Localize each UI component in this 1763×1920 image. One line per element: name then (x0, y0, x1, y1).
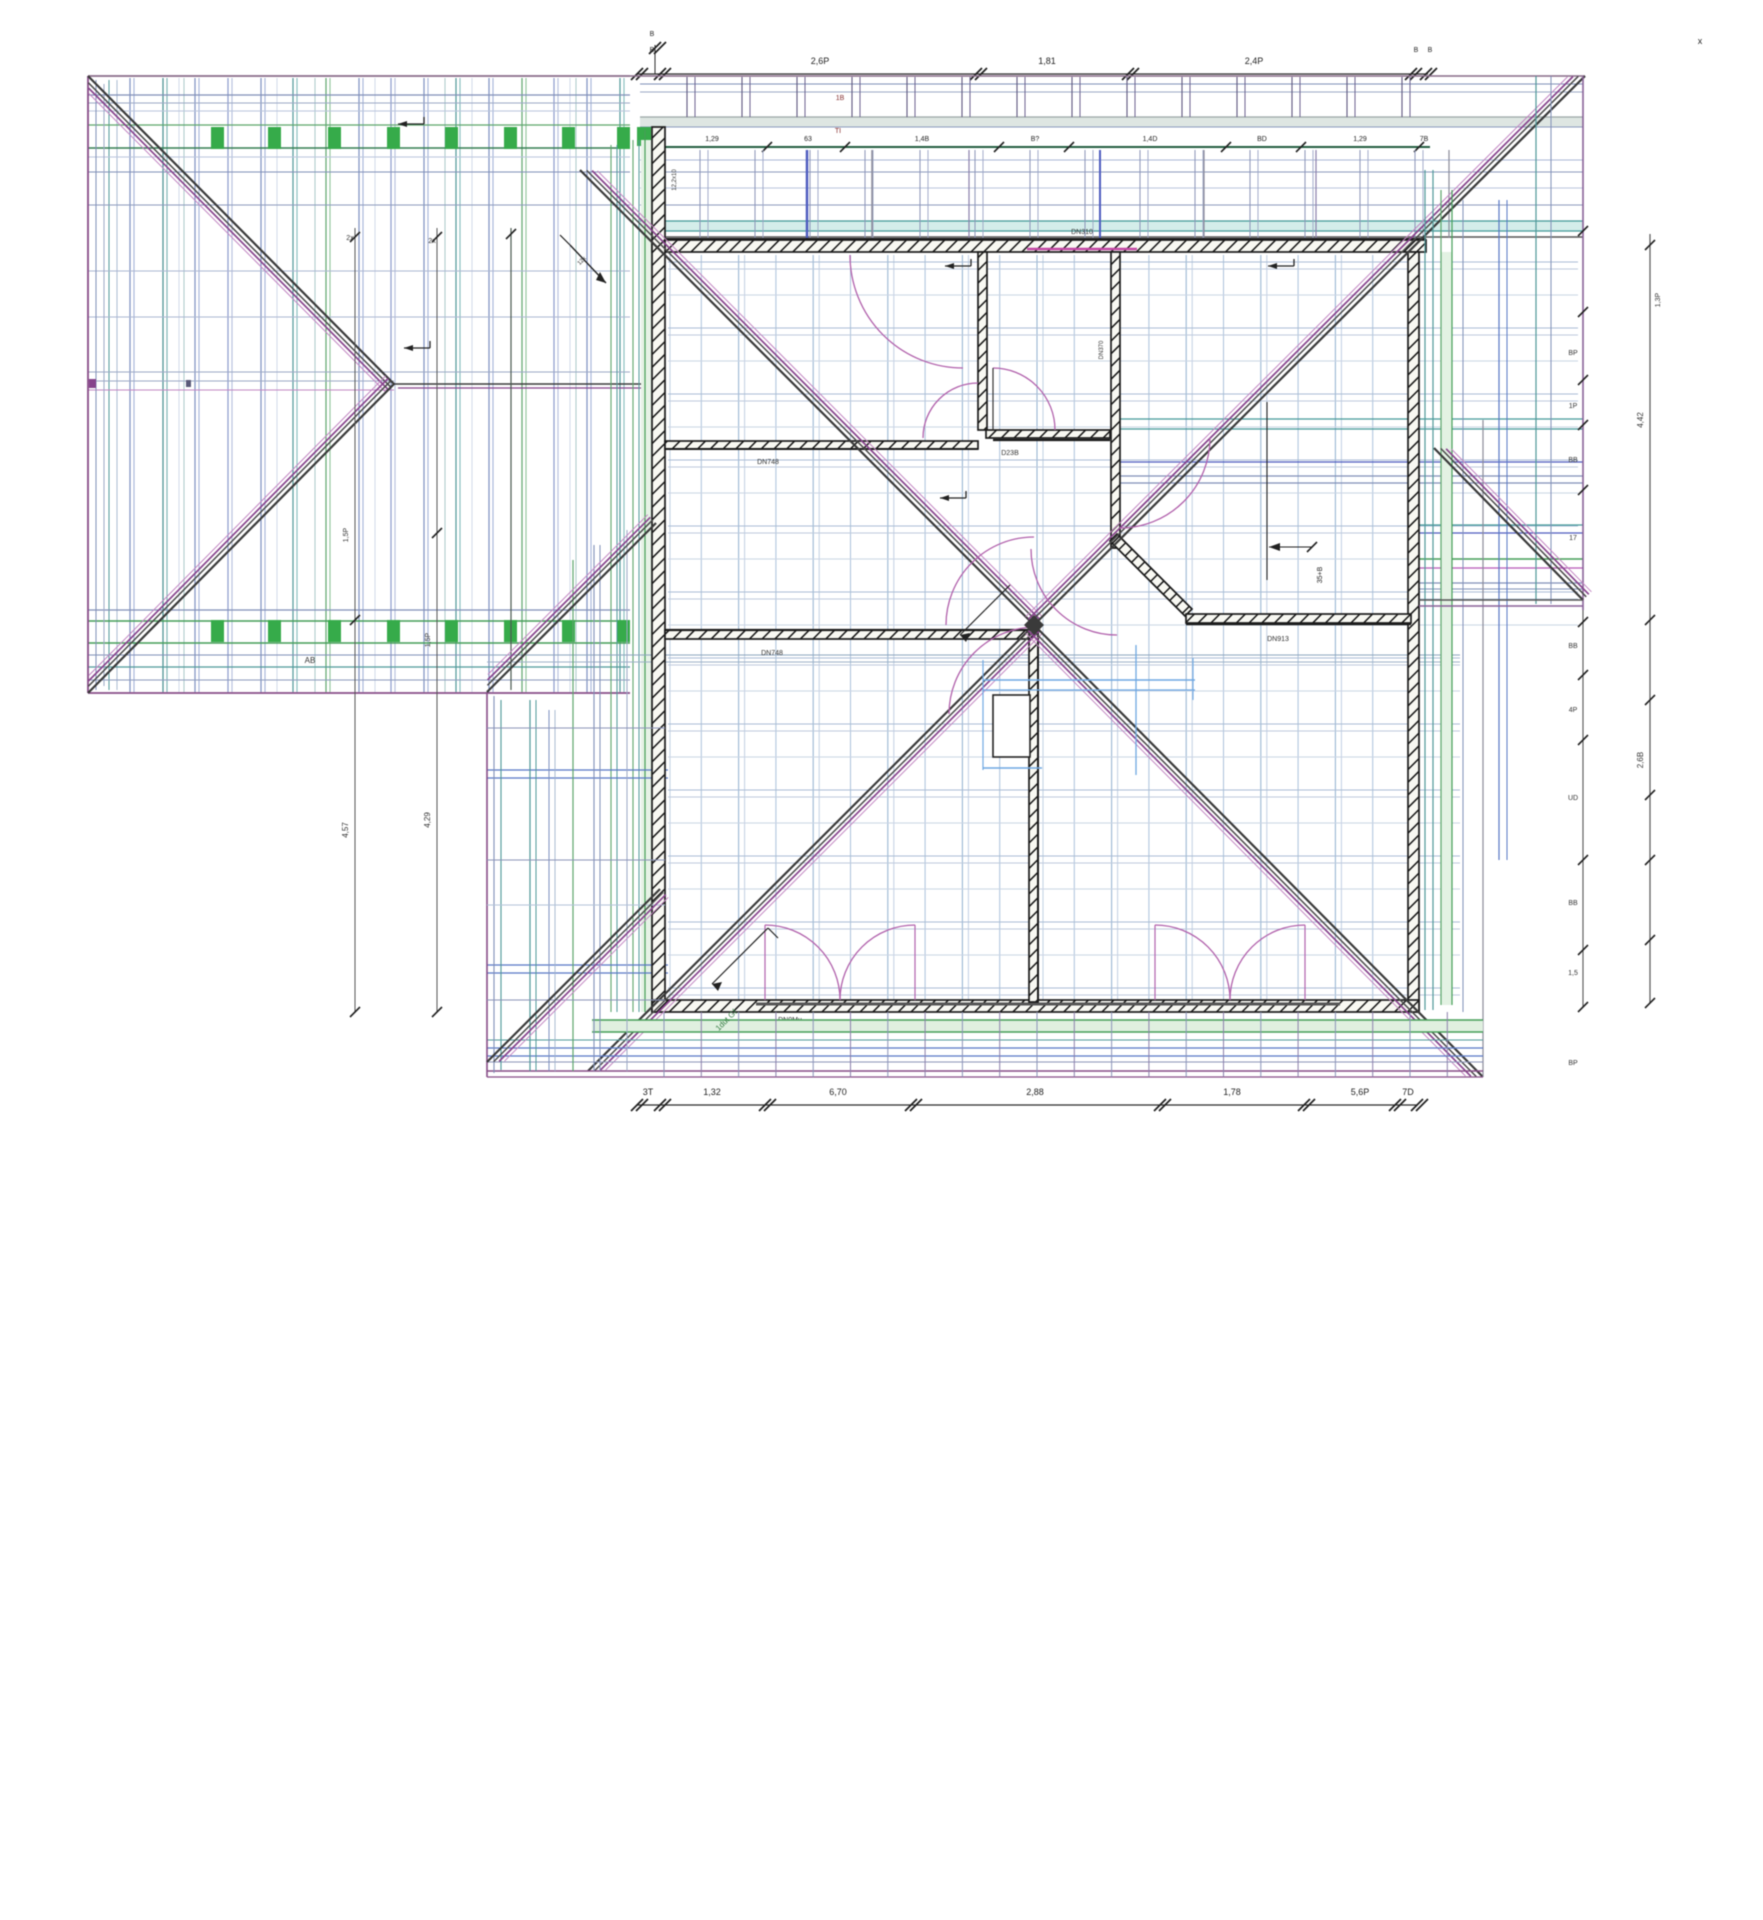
svg-text:5,6P: 5,6P (1351, 1087, 1370, 1097)
svg-text:DN913: DN913 (1267, 636, 1289, 643)
svg-text:BB: BB (1568, 900, 1578, 907)
svg-text:1,78: 1,78 (1223, 1087, 1241, 1097)
svg-text:DN310: DN310 (1071, 229, 1093, 236)
svg-text:1,4D: 1,4D (1143, 136, 1158, 143)
svg-text:D23B: D23B (1001, 450, 1019, 457)
svg-text:1,5P: 1,5P (425, 632, 432, 647)
svg-text:BP: BP (1568, 1060, 1578, 1067)
svg-text:1,4B: 1,4B (915, 136, 930, 143)
svg-text:BB: BB (1568, 643, 1578, 650)
svg-text:6,70: 6,70 (829, 1087, 847, 1097)
svg-text:TI: TI (835, 128, 841, 135)
svg-text:1P: 1P (1569, 403, 1578, 410)
svg-text:35+B: 35+B (1317, 566, 1324, 583)
svg-text:B: B (1414, 47, 1419, 54)
svg-text:4,57: 4,57 (341, 822, 350, 838)
svg-text:1B: 1B (836, 95, 845, 102)
svg-text:1,29: 1,29 (1353, 136, 1367, 143)
svg-text:1,81: 1,81 (1038, 56, 1056, 66)
svg-text:4,29: 4,29 (423, 812, 432, 828)
svg-text:2,6B: 2,6B (1636, 752, 1645, 768)
svg-text:DN748: DN748 (761, 650, 783, 657)
svg-text:2x: 2x (346, 235, 354, 242)
svg-text:x: x (1698, 36, 1703, 46)
svg-text:4,42: 4,42 (1636, 412, 1645, 428)
svg-text:2,4P: 2,4P (1245, 56, 1264, 66)
svg-text:4P: 4P (1569, 707, 1578, 714)
svg-text:2x: 2x (428, 238, 436, 245)
svg-text:UD: UD (1568, 795, 1578, 802)
svg-text:BP: BP (1568, 350, 1578, 357)
svg-text:AB: AB (305, 656, 316, 665)
svg-text:BB: BB (1568, 457, 1578, 464)
svg-text:DN748: DN748 (757, 459, 779, 466)
svg-text:1,3P: 1,3P (1655, 292, 1662, 307)
svg-text:7B: 7B (1420, 136, 1429, 143)
svg-text:17: 17 (1569, 535, 1577, 542)
svg-text:BD: BD (1257, 136, 1267, 143)
svg-text:1,32: 1,32 (703, 1087, 721, 1097)
svg-text:3T: 3T (643, 1087, 654, 1097)
svg-text:1,29: 1,29 (705, 136, 719, 143)
svg-text:1,5: 1,5 (1568, 970, 1578, 977)
svg-text:1,5P: 1,5P (343, 527, 350, 542)
svg-text:B: B (650, 31, 655, 38)
svg-text:B: B (1428, 47, 1433, 54)
svg-text:2,6P: 2,6P (811, 56, 830, 66)
svg-text:B?: B? (1031, 136, 1040, 143)
svg-text:7D: 7D (1402, 1087, 1414, 1097)
svg-text:DN370: DN370 (1099, 340, 1105, 359)
svg-text:63: 63 (804, 136, 812, 143)
svg-text:12,2x10: 12,2x10 (672, 169, 678, 191)
svg-text:2,88: 2,88 (1026, 1087, 1044, 1097)
